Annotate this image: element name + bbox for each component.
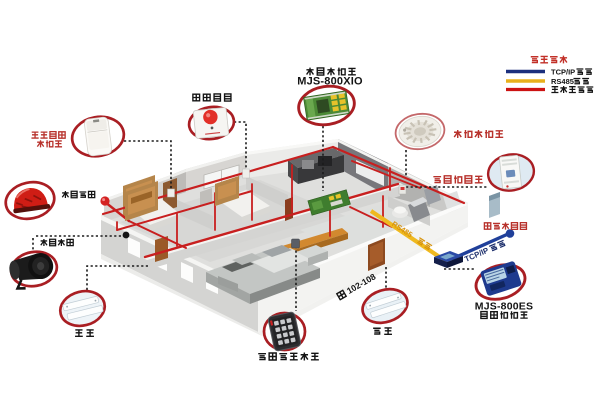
svg-text:MJS-800ES: MJS-800ES (475, 301, 533, 313)
svg-text:TCP/IP: TCP/IP (551, 68, 575, 77)
svg-text:RS485: RS485 (551, 77, 574, 86)
svg-text:MJS-800XIO: MJS-800XIO (297, 76, 363, 88)
